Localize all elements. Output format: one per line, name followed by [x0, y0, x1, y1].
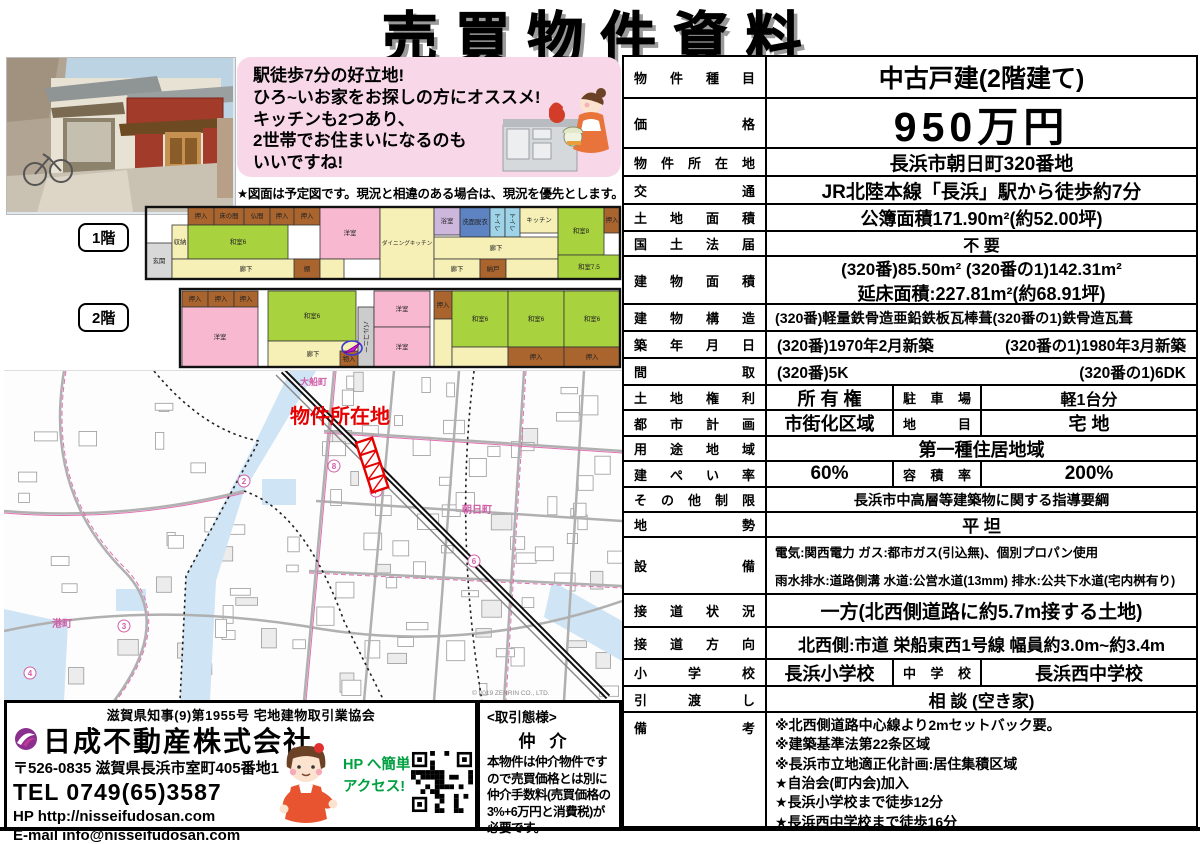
- other-restrictions-value: 長浜市中高層等建築物に関する指導要綱: [767, 488, 1196, 511]
- map-building: [376, 564, 391, 573]
- floorplan-room-label: 廊下: [307, 349, 320, 358]
- table-row-city-planning: 都市計画 市街化区域 地目 宅 地: [624, 411, 1196, 437]
- qr-module: [444, 751, 449, 756]
- table-row-property-type: 物件種目 中古戸建(2階建て): [624, 57, 1196, 99]
- floorplan-room-label: 和室6: [472, 314, 489, 323]
- table-row-other-restrictions: その他制限 長浜市中高層等建築物に関する指導要綱: [624, 488, 1196, 513]
- qr-module: [435, 794, 440, 799]
- deal-type-box: <取引態様> 仲介 本物件は仲介物件ですので売買価格とは別に仲介手数料(売買価格…: [478, 700, 622, 831]
- map-building: [351, 471, 359, 485]
- floorplan-room-label: 押入: [586, 352, 599, 361]
- row-label: 建物構造: [634, 308, 755, 327]
- map-building: [168, 536, 183, 549]
- row-label: 土地権利: [634, 388, 755, 407]
- map-building: [157, 577, 172, 592]
- sheet-bottom-border: [0, 827, 1200, 831]
- row-label: 備考: [634, 718, 755, 737]
- company-box: 滋賀県知事(9)第1955号 宅地建物取引業協会 日成不動産株式会社 〒526-…: [4, 700, 478, 831]
- floorplan-room-label: 浴室: [441, 216, 454, 225]
- road-direction-value: 北西側:市道 栄船東西1号線 幅員約3.0m~約3.4m: [767, 628, 1196, 658]
- qr-module: [454, 804, 459, 809]
- row-label: その他制限: [634, 490, 755, 509]
- floorplan-room-label: 収納: [174, 237, 187, 246]
- floorplan-room-label: 和室6: [584, 314, 601, 323]
- map-building: [342, 390, 353, 405]
- row-label: 地勢: [634, 515, 755, 534]
- floorplan-room-label: 押入: [276, 211, 289, 220]
- qr-module: [411, 770, 416, 775]
- map-building: [118, 640, 138, 656]
- row-label: 価格: [634, 114, 755, 133]
- table-row-structure: 建物構造 (320番)軽量鉄骨造亜鉛鉄板瓦棒葺(320番の1)鉄骨造瓦葺: [624, 305, 1196, 332]
- table-row-zoning: 用途地域 第一種住居地域: [624, 437, 1196, 462]
- svg-text:2: 2: [242, 477, 247, 486]
- qr-module: [454, 775, 459, 780]
- qr-module: [416, 770, 421, 775]
- map-building: [469, 458, 486, 476]
- qr-module: [440, 775, 445, 780]
- map-building: [261, 629, 276, 648]
- deal-type-header: <取引態様>: [487, 706, 612, 726]
- floorplan-room-label: 和室8: [573, 226, 590, 235]
- svg-text:8: 8: [332, 462, 337, 471]
- map-building: [608, 551, 622, 563]
- map-building: [398, 638, 414, 647]
- structure-value: (320番)軽量鉄骨造亜鉛鉄板瓦棒葺(320番の1)鉄骨造瓦葺: [767, 308, 1196, 328]
- row-label: 物件所在地: [634, 153, 755, 172]
- land-area-value: 公簿面積171.90m²(約52.00坪): [767, 205, 1196, 230]
- map-building: [388, 653, 407, 663]
- map-building: [386, 578, 396, 588]
- map-building: [19, 472, 37, 482]
- qr-module: [435, 784, 440, 789]
- map-building: [548, 497, 557, 515]
- table-row-built-date: 築年月日 (320番)1970年2月新築 (320番の1)1980年3月新築: [624, 332, 1196, 359]
- qr-module: [440, 799, 445, 804]
- qr-module: [464, 794, 469, 799]
- row-label: 接道方向: [634, 634, 755, 653]
- coverage-ratio-value: 60%: [767, 462, 894, 486]
- floor2-label: 2階: [78, 303, 129, 332]
- remark-line: ★長浜小学校まで徒歩12分: [775, 793, 1188, 812]
- floor1-label: 1階: [78, 223, 129, 252]
- city-planning-value: 市街化区域: [767, 411, 894, 435]
- floorplan-room-label: 仏間: [251, 212, 264, 220]
- zoning-value: 第一種住居地域: [767, 437, 1196, 460]
- table-row-coverage-ratio: 建ぺい率 60% 容積率 200%: [624, 462, 1196, 488]
- table-row-topography: 地勢 平 坦: [624, 513, 1196, 538]
- house-photo-illustration: [7, 58, 233, 212]
- remark-line: ★自治会(町内会)加入: [775, 774, 1188, 793]
- property-detail-table: 物件種目 中古戸建(2階建て) 価格 950万円 物件所在地 長浜市朝日町320…: [622, 55, 1198, 828]
- qr-module: [454, 794, 459, 799]
- map-building: [216, 619, 227, 637]
- left-column: 駅徒歩7分の好立地! ひろ~いお家をお探しの方にオススメ! キッチンも2つあり、…: [4, 55, 622, 831]
- qr-module: [444, 784, 449, 789]
- national-land-act-value: 不 要: [767, 232, 1196, 255]
- floorplan-svg: 玄関収納押入床の間仏間押入押入和室6廊下棚洋室ダイニングキッチン浴室洗面脱衣トイ…: [144, 203, 622, 373]
- qr-module: [430, 751, 435, 756]
- map-building: [354, 372, 363, 391]
- floorplan-room-label: キッチン: [526, 216, 552, 224]
- qr-module: [430, 770, 435, 775]
- floorplan-room-label: 押入: [530, 352, 543, 361]
- town-label: 港町: [52, 617, 72, 630]
- map-building: [596, 652, 611, 668]
- qr-code: [411, 751, 473, 818]
- row-label: 築年月日: [634, 335, 755, 354]
- qr-module: [468, 770, 473, 775]
- map-building: [568, 641, 587, 648]
- elementary-school-value: 長浜小学校: [767, 660, 894, 685]
- qr-module: [435, 775, 440, 780]
- qr-module: [449, 775, 454, 780]
- map-building: [462, 591, 479, 597]
- map-building: [496, 649, 514, 657]
- floorplan-room: [434, 319, 452, 367]
- floorplan-room-label: 押入: [606, 215, 619, 224]
- remark-line: ※建築基準法第22条区域: [775, 735, 1188, 754]
- qr-module: [459, 808, 464, 813]
- floorplan-room-label: ダイニングキッチン: [382, 239, 433, 247]
- pond: [262, 479, 296, 505]
- map-building: [336, 582, 354, 598]
- qr-module: [425, 784, 430, 789]
- qr-module: [430, 765, 435, 770]
- floorplan-room-label: 押入: [240, 294, 253, 303]
- row-label: 接道状況: [634, 601, 755, 620]
- table-row-handover: 引渡し 相 談 (空き家): [624, 687, 1196, 713]
- building-area-line1: (320番)85.50m² (320番の1)142.31m²: [767, 257, 1196, 280]
- land-category-value: 宅 地: [982, 411, 1196, 435]
- qr-module: [459, 784, 464, 789]
- town-label: 大船町: [300, 376, 327, 387]
- table-row-remarks: 備考 ※北西側道路中心線より2mセットバック要。 ※建築基準法第22条区域 ※長…: [624, 713, 1196, 830]
- floorplan-room-label: 和室7.5: [578, 262, 600, 271]
- floorplan-room-label: 押入: [301, 211, 314, 220]
- qr-module: [430, 761, 435, 766]
- floorplan-room-label: 洋室: [396, 342, 409, 351]
- area-map: 2 3 4 6 7 8 大船町 朝日町 港町 物件所在地: [4, 370, 622, 701]
- map-building: [482, 600, 502, 617]
- bottom-strip: 滋賀県知事(9)第1955号 宅地建物取引業協会 日成不動産株式会社 〒526-…: [4, 700, 622, 831]
- floorplan-room-label: 洗面脱衣: [462, 217, 488, 226]
- sub-label: 中学校: [903, 663, 971, 682]
- deal-type-value: 仲介: [487, 727, 612, 752]
- map-building: [19, 493, 30, 502]
- qr-module: [440, 780, 445, 785]
- qr-module: [440, 808, 445, 813]
- map-building: [516, 553, 536, 563]
- property-sheet: 売買物件資料: [0, 0, 1200, 831]
- map-building: [79, 432, 97, 446]
- utilities-line2: 雨水排水:道路側溝 水道:公営水道(13mm) 排水:公共下水道(宅内桝有り): [767, 570, 1196, 589]
- utilities-line1: 電気:関西電力 ガス:都市ガス(引込無)、個別プロパン使用: [767, 542, 1196, 561]
- built-date-right: (320番の1)1980年3月新築: [1005, 334, 1186, 356]
- row-label: 引渡し: [634, 690, 755, 709]
- floorplan-room: [506, 259, 558, 279]
- figure-note: ★図面は予定図です。現況と相違のある場合は、現況を優先とします。: [237, 183, 625, 202]
- row-label: 間取: [634, 362, 755, 381]
- deal-type-description: 本物件は仲介物件ですので売買価格とは別に仲介手数料(売買価格の3%+6万円と消費…: [487, 754, 612, 837]
- floorplan-room: [452, 347, 508, 367]
- map-building: [317, 607, 334, 625]
- table-row-land-rights: 土地権利 所 有 権 駐車場 軽1台分: [624, 386, 1196, 411]
- qr-module: [468, 775, 473, 780]
- land-rights-value: 所 有 権: [767, 386, 894, 409]
- property-photo: [6, 57, 236, 215]
- property-location-label: 物件所在地: [290, 404, 390, 428]
- town-label: 朝日町: [462, 503, 492, 516]
- building-area-line2: 延床面積:227.81m²(約68.91坪): [767, 280, 1196, 304]
- map-building: [34, 432, 57, 441]
- qr-module: [435, 808, 440, 813]
- row-label: 都市計画: [634, 414, 755, 433]
- floorplan-room-label: 廊下: [490, 243, 503, 252]
- table-row-utilities: 設備 電気:関西電力 ガス:都市ガス(引込無)、個別プロパン使用 雨水排水:道路…: [624, 538, 1196, 595]
- table-row-transport: 交通 JR北陸本線「長浜」駅から徒歩約7分: [624, 177, 1196, 205]
- floorplan-room-label: 和室6: [230, 237, 247, 246]
- qr-module: [421, 789, 426, 794]
- floorplan: 玄関収納押入床の間仏間押入押入和室6廊下棚洋室ダイニングキッチン浴室洗面脱衣トイ…: [144, 203, 622, 373]
- row-label: 国土法届: [634, 234, 755, 253]
- qr-module: [435, 804, 440, 809]
- map-building: [393, 541, 409, 556]
- map-building: [62, 584, 77, 593]
- sub-label: 容積率: [903, 465, 971, 484]
- company-logo-icon: [11, 725, 41, 755]
- map-building: [191, 463, 206, 473]
- map-building: [578, 476, 593, 491]
- remark-line: ※北西側道路中心線より2mセットバック要。: [775, 716, 1188, 735]
- floorplan-room-label: 納戸: [487, 264, 500, 273]
- row-label: 建ぺい率: [634, 465, 755, 484]
- property-type-value: 中古戸建(2階建て): [767, 57, 1196, 97]
- map-building: [342, 680, 361, 695]
- qr-module: [421, 775, 426, 780]
- topography-value: 平 坦: [767, 513, 1196, 536]
- row-label: 交通: [634, 181, 755, 200]
- row-label: 用途地域: [634, 439, 755, 458]
- map-building: [156, 432, 164, 449]
- remark-line: ※長浜市立地適正化計画:居住集積区域: [775, 755, 1188, 774]
- table-row-schools: 小学校 長浜小学校 中学校 長浜西中学校: [624, 660, 1196, 687]
- table-row-national-land-act: 国土法届 不 要: [624, 232, 1196, 257]
- svg-text:6: 6: [472, 557, 477, 566]
- row-label: 物件種目: [634, 68, 755, 87]
- floorplan-room-label: 押入: [195, 211, 208, 220]
- compass-icon: [340, 337, 364, 364]
- table-row-land-area: 土地面積 公簿面積171.90m²(約52.00坪): [624, 205, 1196, 232]
- map-building: [561, 387, 578, 393]
- floorplan-room-label: 洋室: [396, 304, 409, 313]
- map-building: [155, 403, 173, 410]
- road-contact-value: 一方(北西側道路に約5.7m接する土地): [767, 595, 1196, 626]
- svg-text:4: 4: [28, 669, 33, 678]
- map-building: [422, 377, 430, 392]
- floorplan-room-label: トイレ: [493, 212, 500, 231]
- company-hp-url[interactable]: HP http://nisseifudosan.com: [13, 808, 475, 825]
- qr-module: [416, 780, 421, 785]
- floorplan-room-label: 洋室: [214, 332, 227, 341]
- qr-module: [440, 784, 445, 789]
- map-copyright: © 2019 ZENRIN CO., LTD.: [472, 689, 550, 697]
- qr-module: [440, 770, 445, 775]
- map-building: [447, 641, 465, 661]
- floorplan-room-label: トイレ: [508, 212, 515, 231]
- floorplan-room: [320, 259, 344, 279]
- qr-module: [411, 775, 416, 780]
- built-date-left: (320番)1970年2月新築: [777, 334, 934, 356]
- qr-module: [421, 770, 426, 775]
- map-building: [395, 416, 403, 426]
- table-row-layout: 間取 (320番)5K (320番の1)6DK: [624, 359, 1196, 386]
- floorplan-room-label: 廊下: [451, 264, 464, 273]
- floorplan-room-label: 押入: [215, 294, 228, 303]
- qr-module: [468, 780, 473, 785]
- row-label: 設備: [634, 556, 755, 575]
- row-label: 小学校: [634, 663, 755, 682]
- map-building: [51, 557, 69, 566]
- map-building: [288, 537, 299, 552]
- floorplan-room-label: 玄関: [153, 256, 166, 265]
- qr-module: [435, 789, 440, 794]
- map-building: [293, 640, 306, 649]
- qr-module: [454, 808, 459, 813]
- handover-value: 相 談 (空き家): [767, 687, 1196, 711]
- address-value: 長浜市朝日町320番地: [767, 149, 1196, 175]
- floorplan-room-label: 床の間: [219, 211, 238, 220]
- map-building: [406, 623, 428, 630]
- table-row-address: 物件所在地 長浜市朝日町320番地: [624, 149, 1196, 177]
- qr-module: [430, 775, 435, 780]
- map-building: [557, 413, 580, 422]
- table-row-road-direction: 接道方向 北西側:市道 栄船東西1号線 幅員約3.0m~約3.4m: [624, 628, 1196, 660]
- qr-module: [430, 789, 435, 794]
- floorplan-room-label: 和室6: [528, 314, 545, 323]
- promo-box: 駅徒歩7分の好立地! ひろ~いお家をお探しの方にオススメ! キッチンも2つあり、…: [237, 57, 621, 177]
- table-row-building-area: 建物面積 (320番)85.50m² (320番の1)142.31m² 延床面積…: [624, 257, 1196, 305]
- row-label: 土地面積: [634, 208, 755, 227]
- qr-module: [425, 770, 430, 775]
- table-row-road-contact: 接道状況 一方(北西側道路に約5.7m接する土地): [624, 595, 1196, 628]
- qr-module: [454, 799, 459, 804]
- layout-left: (320番)5K: [777, 361, 849, 383]
- floorplan-room-label: 洋室: [344, 228, 357, 237]
- map-building: [491, 515, 512, 530]
- sub-label: 駐車場: [903, 388, 971, 407]
- layout-right: (320番の1)6DK: [1079, 361, 1186, 383]
- qr-module: [440, 794, 445, 799]
- sub-label: 地目: [903, 414, 971, 433]
- map-building: [488, 446, 500, 456]
- map-building: [230, 588, 250, 595]
- map-building: [447, 383, 455, 397]
- parking-value: 軽1台分: [982, 386, 1196, 409]
- table-row-price: 価格 950万円: [624, 99, 1196, 149]
- qr-module: [435, 770, 440, 775]
- floorplan-room-label: 棚: [304, 264, 310, 273]
- mascot-girl-illustration: [273, 741, 339, 834]
- floorplan-room-label: 押入: [189, 294, 202, 303]
- kitchen-illustration: [497, 81, 617, 175]
- qr-module: [449, 784, 454, 789]
- qr-module: [425, 775, 430, 780]
- floorplan-room-label: 押入: [437, 300, 450, 309]
- price-value: 950万円: [767, 99, 1196, 147]
- floorplan-room-label: 廊下: [240, 264, 253, 273]
- junior-high-value: 長浜西中学校: [982, 660, 1196, 685]
- map-building: [535, 547, 553, 561]
- qr-module: [435, 780, 440, 785]
- row-label: 建物面積: [634, 271, 755, 290]
- transport-value: JR北陸本線「長浜」駅から徒歩約7分: [767, 177, 1196, 203]
- floor-area-ratio-value: 200%: [982, 462, 1196, 486]
- map-building: [236, 598, 258, 606]
- map-building: [69, 668, 84, 684]
- floorplan-room-label: 和室6: [304, 311, 321, 320]
- map-building: [287, 565, 299, 572]
- svg-text:3: 3: [122, 622, 127, 631]
- map-building: [595, 456, 610, 474]
- map-building: [522, 598, 534, 608]
- pond: [116, 589, 146, 611]
